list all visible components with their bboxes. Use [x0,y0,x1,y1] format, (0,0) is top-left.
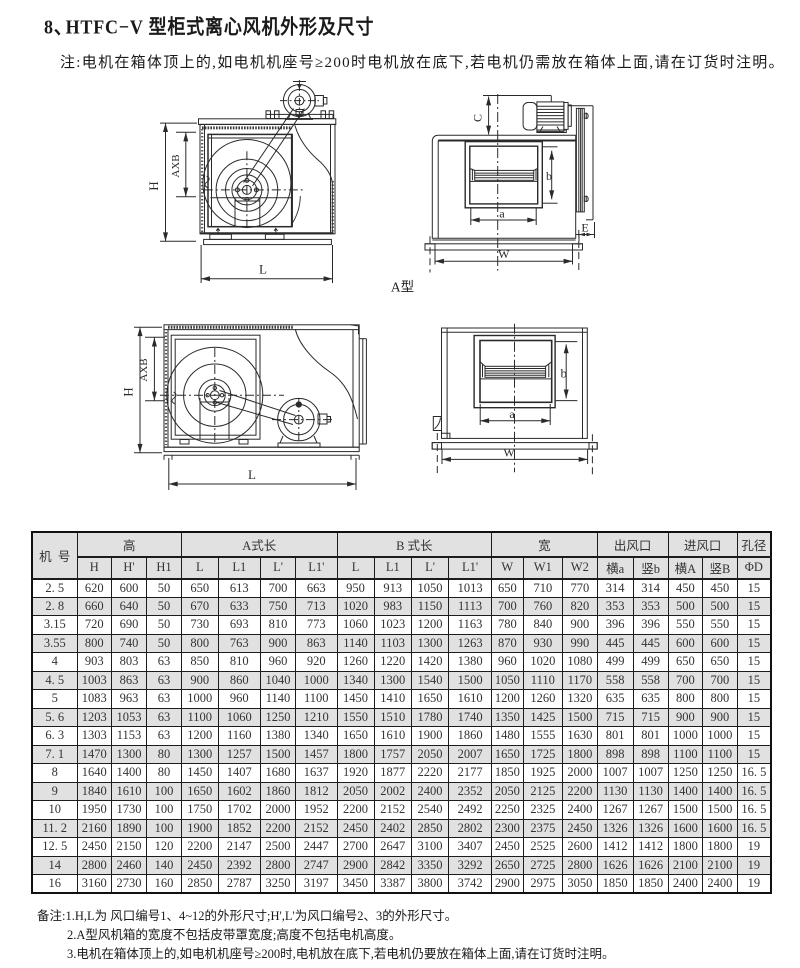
svg-text:L: L [259,262,267,277]
svg-text:W: W [498,247,510,261]
svg-text:H: H [146,181,161,190]
svg-text:C: C [471,114,485,122]
svg-text:H: H [121,387,136,396]
svg-text:a: a [499,207,505,221]
svg-text:W: W [503,446,515,460]
svg-text:AXB: AXB [138,358,150,381]
svg-text:b: b [546,169,552,183]
svg-text:b: b [561,366,568,381]
svg-text:AXB: AXB [170,154,182,177]
svg-text:E: E [581,221,588,235]
svg-text:A型: A型 [391,280,414,295]
svg-text:L: L [248,467,256,482]
